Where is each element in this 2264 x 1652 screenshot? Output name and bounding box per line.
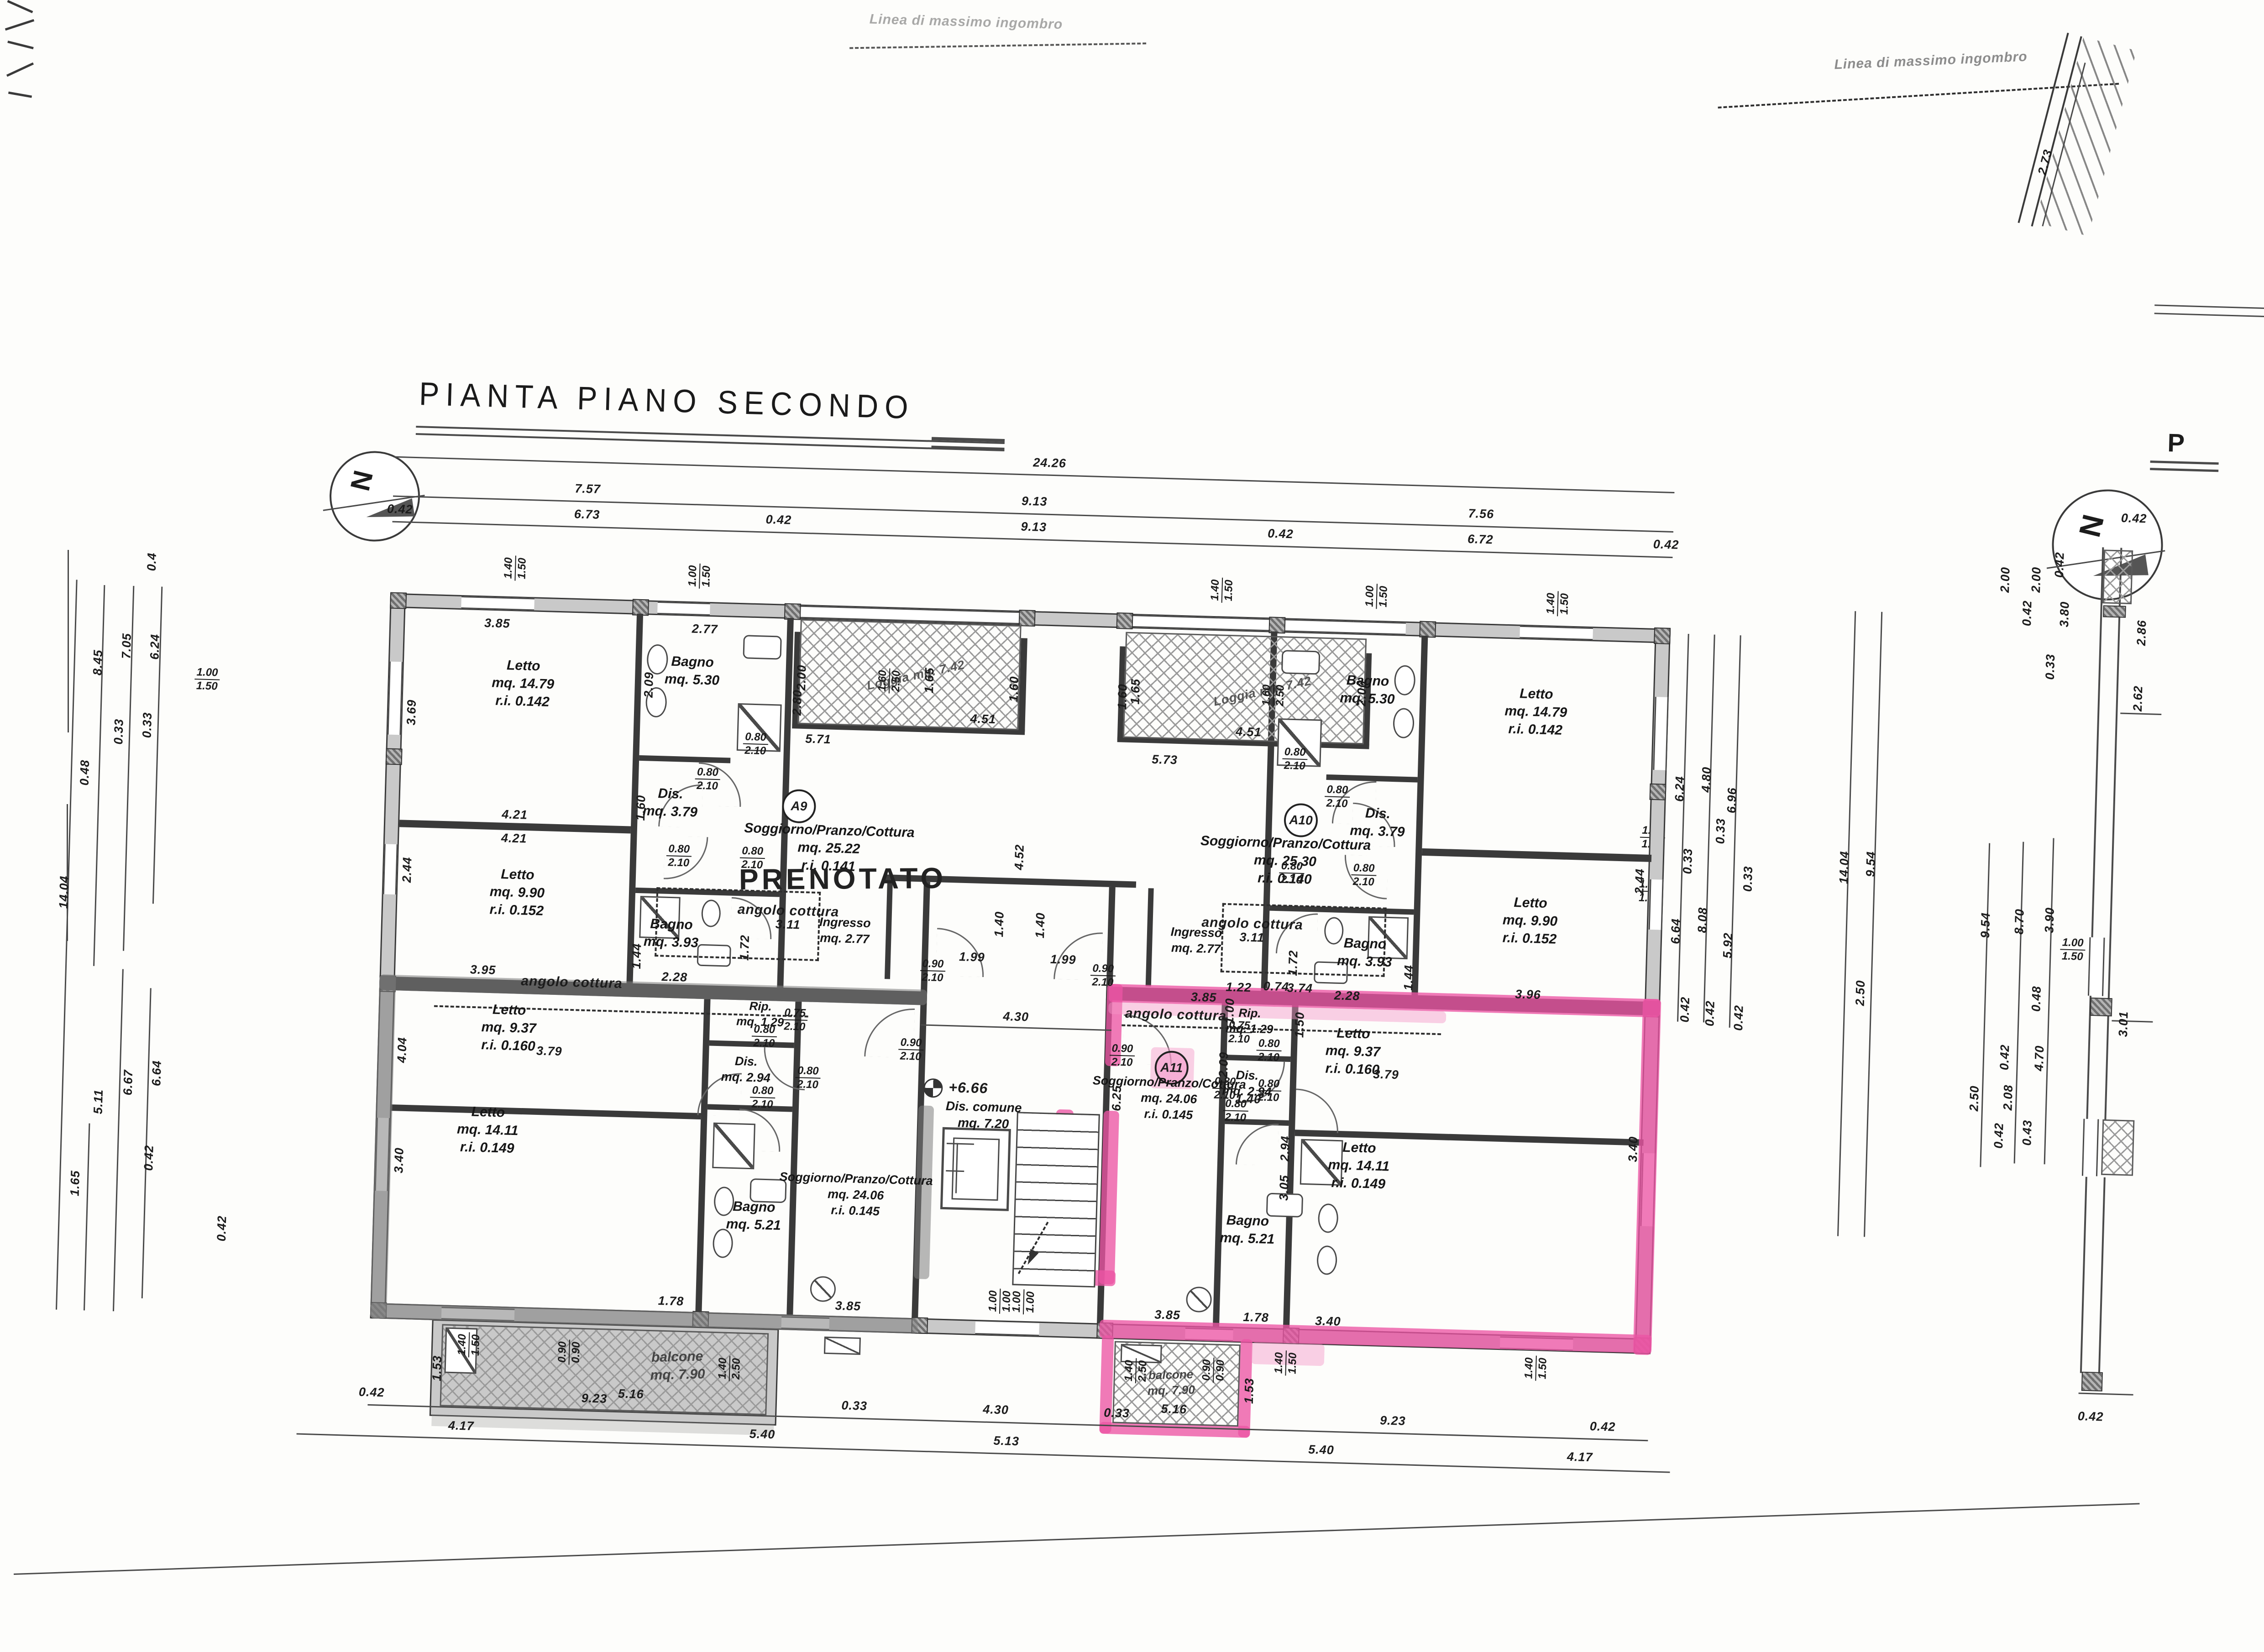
dim: 8.45 bbox=[91, 649, 105, 675]
dim: 9.54 bbox=[1865, 851, 1878, 877]
wc bbox=[1318, 1203, 1339, 1233]
linea-massimo-ingombro-right: Linea di massimo ingombro bbox=[1834, 50, 2028, 72]
section-wall bbox=[2098, 1177, 2106, 1374]
section-hatch bbox=[2101, 1119, 2134, 1176]
dim: 1.44 bbox=[1402, 965, 1415, 991]
dim: 0.42 bbox=[387, 503, 413, 516]
wall bbox=[1411, 636, 1428, 1005]
dim: 1.72 bbox=[738, 935, 751, 961]
dim: 0.43 bbox=[2021, 1120, 2034, 1146]
dim: 1.53 bbox=[1243, 1378, 1256, 1404]
dim: 24.26 bbox=[1033, 456, 1066, 470]
dim: 4.21 bbox=[502, 808, 528, 821]
p-underline bbox=[2150, 468, 2218, 472]
dim-frac: 1.402.50 bbox=[716, 1356, 743, 1381]
dim-frac: 0.802.10 bbox=[1256, 1037, 1282, 1064]
dim: 4.30 bbox=[1003, 1010, 1029, 1024]
dim: 0.48 bbox=[2030, 986, 2043, 1012]
dim: 4.21 bbox=[501, 832, 527, 845]
dim: 0.42 bbox=[2078, 1410, 2104, 1423]
dim: 2.50 bbox=[1854, 980, 1867, 1006]
dim: 1.44 bbox=[630, 943, 644, 969]
dim: 2.28 bbox=[1334, 989, 1360, 1003]
dim: 0.42 bbox=[1992, 1123, 2006, 1149]
wall bbox=[695, 999, 710, 1312]
column bbox=[784, 603, 801, 620]
dim: 0.42 bbox=[2021, 600, 2034, 626]
wc bbox=[1394, 665, 1416, 695]
room-label-letto: Lettomq. 9.37r.i. 0.160 bbox=[481, 1000, 537, 1055]
dim: 3.40 bbox=[393, 1147, 406, 1173]
room-label-letto: Lettomq. 14.79r.i. 0.142 bbox=[1504, 684, 1568, 739]
dim: 6.96 bbox=[1725, 787, 1739, 813]
dim: 1.50 bbox=[1293, 1012, 1306, 1038]
balcony-planter bbox=[824, 1337, 861, 1355]
dim: 3.80 bbox=[2058, 601, 2071, 627]
dim: 3.85 bbox=[484, 617, 510, 630]
window bbox=[1520, 626, 1593, 640]
dim: 0.42 bbox=[1678, 996, 1692, 1022]
dim: 3.85 bbox=[835, 1300, 861, 1313]
column bbox=[632, 599, 649, 616]
dim: 2.09 bbox=[1217, 1051, 1231, 1077]
dim: 2.62 bbox=[2132, 685, 2145, 711]
dim-frac: 0.802.10 bbox=[1223, 1097, 1248, 1124]
dim: 6.67 bbox=[122, 1069, 135, 1095]
dim: 5.11 bbox=[92, 1089, 105, 1114]
prenotato-mark: PRENOTATO bbox=[739, 861, 947, 896]
angolo-cottura-line bbox=[1122, 1025, 1441, 1035]
column bbox=[1116, 612, 1133, 629]
dim: 2.80 bbox=[791, 690, 804, 716]
dim: 7.57 bbox=[575, 482, 601, 496]
dim-line bbox=[297, 1433, 1670, 1473]
dim: 9.13 bbox=[1022, 495, 1048, 508]
dim-frac: 0.802.10 bbox=[739, 845, 765, 872]
dim: 3.79 bbox=[1373, 1068, 1399, 1082]
dim-frac: 0.902.10 bbox=[1090, 962, 1116, 989]
linea-massimo-dash-top bbox=[849, 42, 1146, 49]
dim: 1.60 bbox=[634, 795, 648, 821]
dim-frac: 1.001.50 bbox=[194, 666, 220, 693]
room-label-dis: Dis.mq. 3.79 bbox=[642, 784, 698, 821]
dim-frac: 1.001.00 bbox=[986, 1288, 1013, 1314]
room-label-letto: Lettomq. 9.90r.i. 0.152 bbox=[1502, 893, 1558, 948]
dim-frac: 0.802.10 bbox=[1282, 746, 1308, 773]
dim-line bbox=[1677, 634, 1689, 1022]
dim: 4.04 bbox=[396, 1037, 409, 1063]
dim: 3.96 bbox=[1515, 988, 1541, 1001]
dim: 0.74 bbox=[1263, 980, 1289, 993]
dim: 1.60 bbox=[1008, 676, 1021, 702]
dim: 5.40 bbox=[749, 1428, 775, 1441]
window bbox=[383, 844, 398, 894]
dim-line bbox=[1980, 843, 1990, 1167]
dim: 2.28 bbox=[661, 971, 687, 984]
dim-frac: 0.802.10 bbox=[1256, 1077, 1281, 1104]
dim-frac: 0.900.90 bbox=[1200, 1357, 1227, 1383]
dim: 3.95 bbox=[470, 963, 496, 977]
window bbox=[1649, 879, 1664, 930]
column bbox=[386, 748, 403, 765]
room-label-bagno: Bagnomq. 5.30 bbox=[665, 652, 720, 689]
dim: 0.33 bbox=[141, 712, 154, 738]
dim: 6.25 bbox=[1111, 1085, 1124, 1111]
dim: 0.42 bbox=[2121, 512, 2147, 525]
room-label-soggiorno: Soggiorno/Pranzo/Cotturamq. 24.06r.i. 0.… bbox=[778, 1169, 933, 1221]
dim: 5.92 bbox=[1721, 932, 1735, 958]
door-arc bbox=[1236, 1123, 1279, 1166]
dim-frac: 1.401.50 bbox=[1209, 577, 1236, 603]
column bbox=[1654, 627, 1671, 644]
boiler-symbol bbox=[1186, 1286, 1212, 1313]
dim-line bbox=[921, 1024, 1111, 1031]
column bbox=[1650, 784, 1667, 800]
section-hatch bbox=[2102, 549, 2133, 604]
dim: 3.11 bbox=[1239, 931, 1264, 944]
section-window bbox=[2082, 1119, 2099, 1176]
dim: 1.65 bbox=[1129, 679, 1142, 705]
column bbox=[1019, 610, 1036, 627]
sink bbox=[743, 635, 781, 659]
dim: 2.77 bbox=[692, 623, 718, 636]
dim: 2.86 bbox=[2135, 620, 2149, 646]
sink bbox=[1281, 650, 1320, 674]
dim-line bbox=[1729, 635, 1741, 1028]
dim: 7.05 bbox=[120, 633, 133, 659]
dim: 1.60 bbox=[1116, 684, 1129, 710]
window bbox=[657, 601, 710, 616]
dim: 2.09 bbox=[642, 672, 655, 698]
dim: 3.79 bbox=[536, 1045, 562, 1058]
dim: 0.42 bbox=[1703, 1000, 1717, 1026]
dim: 0.33 bbox=[1714, 818, 1727, 844]
scanned-floorplan-sheet: { "title": "PIANTA PIANO SECONDO", "note… bbox=[0, 0, 2264, 1600]
dim: 3.01 bbox=[2117, 1011, 2130, 1037]
dim: 2.00 bbox=[1356, 680, 1369, 706]
dim-line bbox=[56, 580, 78, 1309]
dim: 3.85 bbox=[1190, 991, 1216, 1004]
dim-frac: 0.902.10 bbox=[920, 957, 945, 984]
dim: 9.13 bbox=[1021, 521, 1047, 534]
dim-frac: 1.001.50 bbox=[1363, 584, 1390, 609]
dim-frac: 0.802.10 bbox=[1279, 860, 1305, 887]
dim: 2.44 bbox=[1633, 868, 1646, 894]
dim: 2.50 bbox=[1968, 1085, 1981, 1111]
dim: 1.99 bbox=[1050, 953, 1076, 967]
dim: 7.56 bbox=[1468, 507, 1494, 521]
room-label-letto: Lettomq. 14.79r.i. 0.142 bbox=[491, 656, 555, 711]
section-block bbox=[2081, 1372, 2103, 1391]
dim: 4.17 bbox=[1567, 1451, 1593, 1464]
dim: 5.16 bbox=[1161, 1403, 1187, 1416]
dim: 1.65 bbox=[923, 667, 936, 693]
dim: 1.53 bbox=[430, 1355, 444, 1381]
dim: 0.33 bbox=[112, 718, 126, 744]
dim-frac: 0.900.90 bbox=[556, 1339, 582, 1365]
room-label-bagno: Bagnomq. 3.93 bbox=[1337, 934, 1393, 971]
dim-frac: 0.802.10 bbox=[795, 1064, 821, 1091]
dim: 3.11 bbox=[776, 918, 801, 931]
dim: 2.08 bbox=[2002, 1084, 2015, 1110]
section-block bbox=[2103, 605, 2126, 617]
dim-line bbox=[93, 585, 105, 966]
wall bbox=[1422, 848, 1651, 862]
dim: 2.44 bbox=[401, 857, 414, 883]
dim-frac: 1.001.50 bbox=[686, 563, 713, 589]
a11-highlight-right bbox=[1633, 999, 1661, 1355]
dim: 3.90 bbox=[2043, 907, 2056, 933]
dim: 3.05 bbox=[1278, 1175, 1291, 1201]
section-window bbox=[2088, 937, 2105, 996]
room-label-dis-comune: Dis. comunemq. 7.20 bbox=[945, 1098, 1022, 1133]
a8-highlight-left bbox=[370, 974, 396, 1319]
dim: 0.42 bbox=[1268, 528, 1294, 541]
dim: 0.42 bbox=[1653, 538, 1679, 551]
apartment-badge-a9: A9 bbox=[781, 789, 816, 824]
dim: 5.73 bbox=[1152, 753, 1178, 767]
dim-frac: 0.802.10 bbox=[1324, 783, 1350, 810]
level-label: +6.66 bbox=[949, 1080, 988, 1095]
window bbox=[461, 596, 535, 611]
dim: 1.78 bbox=[658, 1295, 684, 1308]
dim-frac: 0.802.10 bbox=[1351, 862, 1377, 889]
room-label-ingresso: Ingressomq. 2.77 bbox=[1170, 924, 1222, 957]
dim: 14.04 bbox=[1838, 851, 1851, 884]
room-label-bagno: Bagnomq. 3.93 bbox=[643, 915, 699, 951]
bidet bbox=[1393, 708, 1415, 738]
dim-frac: 1.401.50 bbox=[1522, 1355, 1549, 1381]
wall bbox=[639, 755, 730, 763]
dim-frac: 0.802.10 bbox=[751, 1023, 777, 1050]
dim-frac: 0.752.10 bbox=[1226, 1019, 1252, 1046]
dim-frac: 0.802.10 bbox=[666, 842, 692, 869]
dim: 4.51 bbox=[970, 713, 996, 726]
dim: 3.40 bbox=[1315, 1315, 1341, 1328]
dim: 6.64 bbox=[1669, 918, 1682, 944]
window bbox=[1653, 697, 1668, 770]
dim: 0.42 bbox=[142, 1145, 156, 1171]
page-title: PIANTA PIANO SECONDO bbox=[419, 377, 915, 424]
dim: 4.17 bbox=[448, 1419, 474, 1432]
dim: 6.24 bbox=[148, 634, 162, 660]
dim: 0.33 bbox=[1742, 866, 1755, 892]
shower bbox=[712, 1123, 755, 1170]
dim: 8.08 bbox=[1696, 907, 1709, 933]
level-marker bbox=[923, 1078, 943, 1098]
dim: 3.85 bbox=[1154, 1308, 1180, 1322]
dim: 5.40 bbox=[1308, 1443, 1334, 1457]
dim: 1.40 bbox=[993, 911, 1006, 937]
dim: 6.72 bbox=[1467, 533, 1494, 546]
room-label-letto: Lettomq. 9.90r.i. 0.152 bbox=[489, 865, 545, 920]
section-block bbox=[2090, 998, 2112, 1016]
dim-frac: 0.802.10 bbox=[743, 731, 768, 758]
dim: 4.52 bbox=[1013, 844, 1026, 870]
window bbox=[1353, 621, 1406, 635]
dim-frac: 1.602.50 bbox=[1260, 683, 1287, 708]
dim: 0.4 bbox=[146, 552, 158, 571]
dim: 0.48 bbox=[79, 759, 92, 785]
dim: 1.65 bbox=[68, 1170, 82, 1196]
drawing-sheet: PIANTA PIANO SECONDO Linea di massimo in… bbox=[0, 0, 2264, 1652]
dim-line bbox=[113, 969, 124, 1311]
dim: 8.70 bbox=[2013, 909, 2026, 935]
bidet bbox=[1316, 1245, 1337, 1275]
dim: 0.42 bbox=[765, 513, 791, 527]
wall bbox=[1283, 1005, 1299, 1328]
dim: 0.33 bbox=[841, 1399, 867, 1412]
dim: 0.42 bbox=[359, 1386, 385, 1399]
dim: 6.24 bbox=[1673, 776, 1687, 802]
boiler-symbol bbox=[810, 1276, 836, 1302]
room-label-letto: Lettomq. 9.37r.i. 0.160 bbox=[1325, 1024, 1381, 1079]
linea-massimo-ingombro-top: Linea di massimo ingombro bbox=[870, 12, 1063, 31]
dim: 0.42 bbox=[1590, 1420, 1616, 1433]
dim: 6.73 bbox=[574, 508, 600, 521]
dim-line bbox=[2044, 838, 2054, 1164]
door-arc bbox=[1295, 1088, 1340, 1133]
dim: 1.78 bbox=[1243, 1311, 1269, 1324]
dim: 1.40 bbox=[1034, 912, 1047, 938]
dim: 0.42 bbox=[1732, 1005, 1745, 1031]
dim: 0.33 bbox=[1104, 1406, 1130, 1420]
dim: 4.51 bbox=[1236, 726, 1262, 739]
dim-frac: 0.752.10 bbox=[782, 1006, 807, 1033]
p-underline bbox=[2150, 460, 2219, 465]
entrance-door bbox=[975, 1322, 1039, 1336]
balcone-label: balconemq. 7.90 bbox=[1147, 1367, 1195, 1399]
wall bbox=[885, 881, 893, 979]
dim: 1.22 bbox=[1226, 981, 1252, 994]
dim-frac: 1.401.50 bbox=[456, 1332, 482, 1358]
balcone-label: balconemq. 7.90 bbox=[650, 1347, 705, 1384]
dim: 9.23 bbox=[581, 1392, 607, 1405]
p-mark: P bbox=[2167, 430, 2185, 456]
dim-line bbox=[2014, 842, 2024, 1164]
dim: 0.42 bbox=[2053, 552, 2066, 578]
dim: 0.33 bbox=[2044, 654, 2057, 680]
dim: 6.64 bbox=[150, 1060, 163, 1086]
wall bbox=[391, 1104, 701, 1119]
room-label-dis: Dis.mq. 2.94 bbox=[721, 1053, 771, 1086]
dim: 14.04 bbox=[58, 875, 71, 909]
dim: 9.54 bbox=[1979, 912, 1992, 938]
dim: 2.00 bbox=[2030, 567, 2043, 593]
dim: 0.33 bbox=[1682, 848, 1695, 874]
dim: 4.80 bbox=[1700, 767, 1714, 793]
section-step bbox=[2079, 1393, 2133, 1396]
dim: 2.00 bbox=[1999, 567, 2012, 593]
a8-highlight-top bbox=[379, 974, 927, 1005]
section-wall bbox=[2080, 1177, 2087, 1373]
section-tick bbox=[2120, 712, 2161, 715]
dim: 0.42 bbox=[1998, 1044, 2012, 1070]
room-label-bagno: Bagnomq. 5.21 bbox=[1220, 1211, 1275, 1248]
dim-line bbox=[84, 1124, 90, 1311]
dim-line bbox=[1864, 612, 1882, 1237]
dim-frac: 0.902.10 bbox=[1109, 1042, 1135, 1069]
room-label-bagno: Bagnomq. 5.21 bbox=[726, 1197, 781, 1234]
dim-frac: 1.001.50 bbox=[2060, 936, 2086, 963]
angolo-label: angolo cottura bbox=[521, 974, 623, 991]
dim: 1.99 bbox=[959, 951, 985, 964]
dim: 3.40 bbox=[1627, 1136, 1640, 1162]
dim-frac: 1.001.00 bbox=[1010, 1289, 1037, 1315]
dim-frac: 0.802.10 bbox=[695, 766, 720, 793]
dim: 3.74 bbox=[1287, 982, 1313, 995]
boundary-tick bbox=[2154, 304, 2264, 309]
dim: 4.70 bbox=[2033, 1045, 2046, 1071]
dim: 2.94 bbox=[1279, 1135, 1292, 1161]
dim-frac: 0.802.10 bbox=[749, 1084, 775, 1111]
dim: 4.30 bbox=[983, 1403, 1009, 1417]
room-label-letto: Lettomq. 14.11r.i. 0.149 bbox=[456, 1103, 519, 1158]
dim: 5.13 bbox=[993, 1435, 1019, 1448]
dim: 1.72 bbox=[1287, 950, 1300, 976]
dim-line bbox=[1837, 611, 1856, 1236]
section-wall bbox=[2086, 547, 2104, 1120]
dim: 9.23 bbox=[1380, 1414, 1406, 1427]
dim-frac: 1.401.50 bbox=[502, 555, 529, 581]
dim-frac: 1.401.50 bbox=[1272, 1350, 1299, 1376]
dim: 5.16 bbox=[618, 1388, 644, 1401]
room-label-letto: Lettomq. 14.11r.i. 0.149 bbox=[1327, 1138, 1390, 1193]
dim: 2.00 bbox=[795, 664, 808, 690]
room-label-ingresso: Ingressomq. 2.77 bbox=[819, 914, 871, 947]
apartment-badge-a10: A10 bbox=[1284, 803, 1318, 837]
angolo-label: angolo cottura bbox=[1125, 1007, 1226, 1023]
column bbox=[390, 592, 407, 609]
elevator-car bbox=[951, 1137, 1000, 1201]
room-label-dis: Dis.mq. 3.79 bbox=[1350, 804, 1405, 841]
window bbox=[387, 662, 403, 735]
dim-frac: 0.902.10 bbox=[898, 1036, 923, 1063]
dim: 0.42 bbox=[215, 1215, 229, 1241]
dim: 5.71 bbox=[805, 733, 831, 746]
dim-frac: 1.602.50 bbox=[876, 668, 903, 694]
dim-frac: 1.402.50 bbox=[1122, 1358, 1149, 1384]
boundary-tick bbox=[2154, 313, 2264, 317]
dim-line bbox=[141, 988, 152, 1298]
dim: 3.69 bbox=[405, 699, 419, 725]
dim-frac: 1.401.50 bbox=[1544, 591, 1571, 617]
wall bbox=[1146, 888, 1154, 986]
